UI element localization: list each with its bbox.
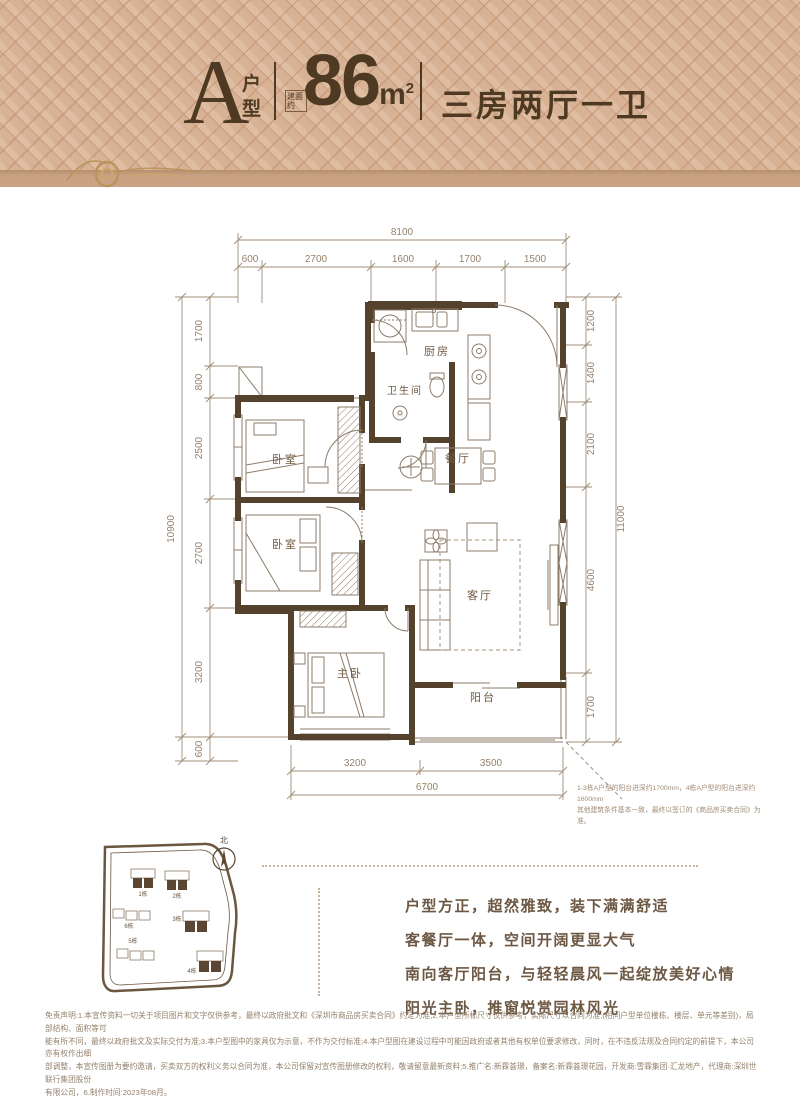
svg-text:2700: 2700 (194, 541, 205, 564)
room-label-master: 主卧 (337, 667, 363, 680)
svg-text:3200: 3200 (344, 758, 367, 769)
dims-left: 10900 1700 800 2500 2700 3200 600 (166, 293, 291, 765)
dotted-separator-horizontal (262, 865, 698, 867)
svg-text:600: 600 (242, 254, 259, 265)
svg-text:2700: 2700 (305, 254, 328, 265)
svg-text:1600: 1600 (392, 254, 415, 265)
brand-logo (55, 150, 205, 199)
svg-text:1400: 1400 (586, 361, 597, 384)
room-label-balcony: 阳台 (470, 690, 496, 704)
svg-text:3200: 3200 (194, 660, 205, 683)
room-label-living: 客厅 (467, 588, 493, 602)
svg-text:北: 北 (220, 836, 228, 845)
room-label-bedroom1: 卧室 (272, 452, 298, 466)
header-banner: A 户型 建面约 86 m2 三房两厅一卫 (0, 0, 800, 172)
marketing-line: 客餐厅一体，空间开阔更显大气 (405, 929, 735, 950)
svg-text:5栋: 5栋 (128, 937, 137, 945)
room-label-dining: 餐厅 (445, 451, 471, 465)
wall-pier (236, 395, 354, 402)
building-2: 2栋 (165, 871, 189, 900)
building-3: 3栋 (172, 911, 209, 932)
svg-text:2100: 2100 (586, 432, 597, 455)
north-compass: 北 (213, 836, 235, 870)
area-value-group: 86 m2 (303, 46, 414, 116)
svg-text:6栋: 6栋 (124, 922, 133, 930)
layout-label: 三房两厅一卫 (441, 80, 651, 126)
building-6: 6栋 (113, 909, 150, 930)
svg-text:1500: 1500 (524, 254, 547, 265)
header-divider (420, 62, 422, 120)
header-divider (274, 62, 276, 120)
unit-type-letter: A (183, 50, 249, 134)
windows-and-glass (234, 303, 567, 742)
svg-text:800: 800 (194, 373, 205, 390)
svg-text:10900: 10900 (166, 515, 177, 543)
floorplan-drawing: 8100 600 2700 1600 1700 1500 10900 1700 … (150, 215, 690, 840)
svg-text:1700: 1700 (586, 695, 597, 718)
svg-text:1700: 1700 (194, 319, 205, 342)
balcony-depth-note: 1-3栋A户型的阳台进深约1700mm，4栋A户型的阳台进深约1600mm 其他… (577, 783, 772, 827)
building-5: 5栋 (117, 937, 154, 960)
svg-text:600: 600 (194, 740, 205, 757)
svg-text:2500: 2500 (194, 436, 205, 459)
room-label-bathroom: 卫生间 (387, 384, 423, 397)
marketing-line: 户型方正，超然雅致，装下满满舒适 (405, 895, 735, 916)
room-label-kitchen: 厨房 (424, 345, 450, 358)
room-label-bedroom2: 卧室 (272, 537, 298, 551)
dims-bottom: 3200 3500 6700 (287, 745, 567, 800)
svg-text:4600: 4600 (586, 568, 597, 591)
area-value: 86 (303, 46, 379, 116)
site-plan: 北 1栋 2栋 3栋 4栋 6栋 5栋 (85, 833, 365, 1018)
dims-right: 1200 1400 2100 4600 1700 11000 (566, 293, 627, 746)
svg-text:1200: 1200 (586, 309, 597, 332)
area-unit: m2 (379, 68, 414, 116)
svg-text:11000: 11000 (616, 505, 627, 533)
dims-top: 8100 600 2700 1600 1700 1500 (234, 227, 570, 303)
svg-text:6700: 6700 (416, 782, 439, 793)
building-1: 1栋 (131, 869, 155, 898)
dotted-separator-vertical (318, 888, 320, 996)
svg-text:1栋: 1栋 (138, 890, 147, 898)
svg-text:2栋: 2栋 (172, 892, 181, 900)
building-4: 4栋 (187, 951, 223, 975)
disclaimer-text: 免责声明:1.本宣传资料一切关于项目图片和文字仅供参考，最终以政府批文和《深圳市… (45, 1010, 761, 1100)
marketing-line: 南向客厅阳台，与轻轻晨风一起绽放美好心情 (405, 963, 735, 984)
walls (238, 305, 566, 742)
svg-text:3栋: 3栋 (172, 915, 181, 923)
svg-text:4栋: 4栋 (187, 967, 196, 975)
unit-type-label: 户型 (242, 72, 262, 122)
svg-text:3500: 3500 (480, 758, 503, 769)
svg-text:1700: 1700 (459, 254, 482, 265)
svg-text:8100: 8100 (391, 227, 414, 238)
